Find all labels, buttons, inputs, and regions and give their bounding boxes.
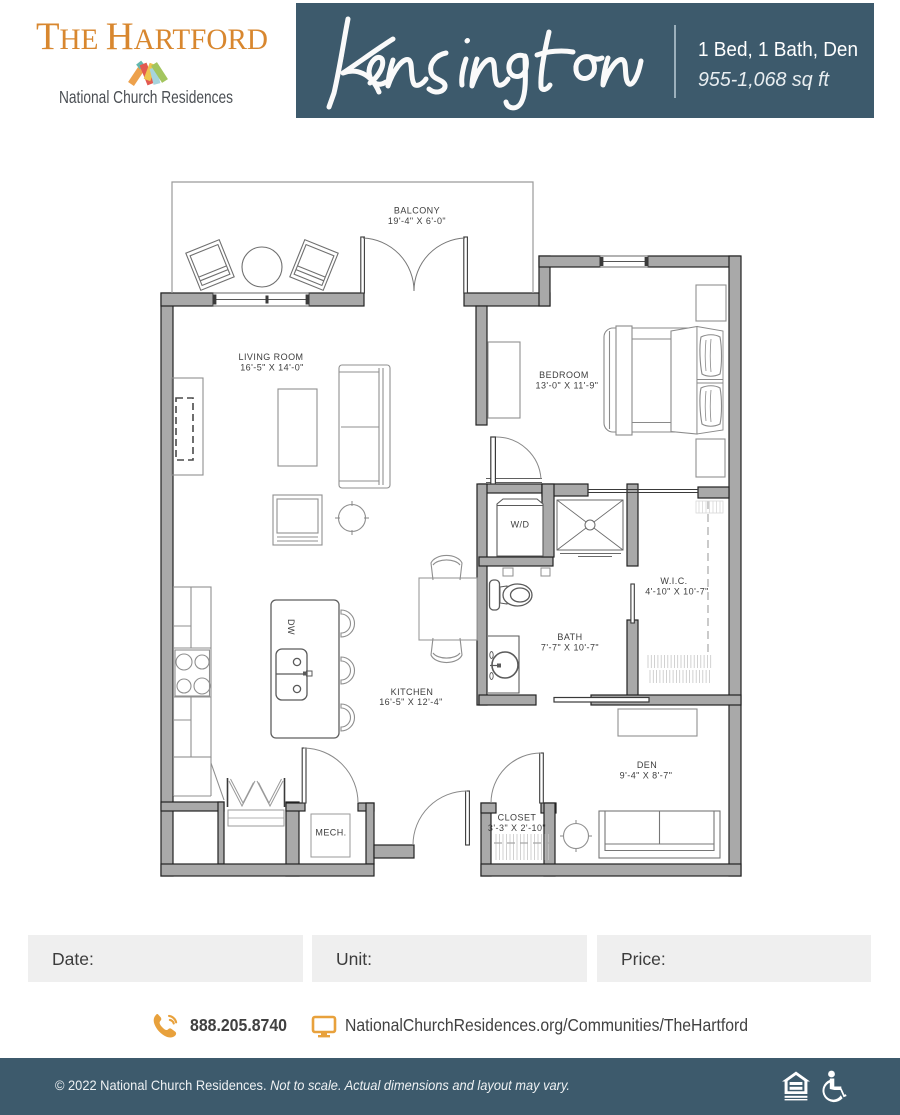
svg-text:KITCHEN: KITCHEN — [391, 687, 434, 697]
svg-text:DW: DW — [286, 619, 296, 635]
svg-text:4'-10" X 10'-7": 4'-10" X 10'-7" — [645, 587, 709, 597]
svg-text:DEN: DEN — [637, 760, 657, 770]
svg-text:16'-5" X 12'-4": 16'-5" X 12'-4" — [379, 697, 443, 707]
svg-text:BALCONY: BALCONY — [394, 206, 440, 216]
svg-text:BEDROOM: BEDROOM — [539, 370, 589, 380]
svg-text:16'-5" X 14'-0": 16'-5" X 14'-0" — [240, 363, 304, 373]
svg-text:13'-0" X 11'-9": 13'-0" X 11'-9" — [536, 381, 599, 391]
svg-text:9'-4" X 8'-7": 9'-4" X 8'-7" — [620, 771, 673, 781]
svg-text:BATH: BATH — [557, 632, 582, 642]
svg-text:W.I.C.: W.I.C. — [660, 576, 687, 586]
svg-text:W/D: W/D — [511, 520, 530, 530]
svg-text:MECH.: MECH. — [315, 828, 346, 838]
svg-text:CLOSET: CLOSET — [498, 813, 537, 823]
svg-text:3'-3" X 2'-10": 3'-3" X 2'-10" — [488, 823, 546, 833]
svg-text:7'-7" X 10'-7": 7'-7" X 10'-7" — [541, 643, 599, 653]
svg-text:19'-4" X 6'-0": 19'-4" X 6'-0" — [388, 216, 446, 226]
svg-text:NationalChurchResidences.org/C: NationalChurchResidences.org/Communities… — [345, 1015, 748, 1035]
svg-text:LIVING ROOM: LIVING ROOM — [239, 352, 304, 362]
svg-text:888.205.8740: 888.205.8740 — [190, 1015, 287, 1035]
svg-text:© 2022 National Church Residen: © 2022 National Church Residences. Not t… — [55, 1078, 570, 1093]
